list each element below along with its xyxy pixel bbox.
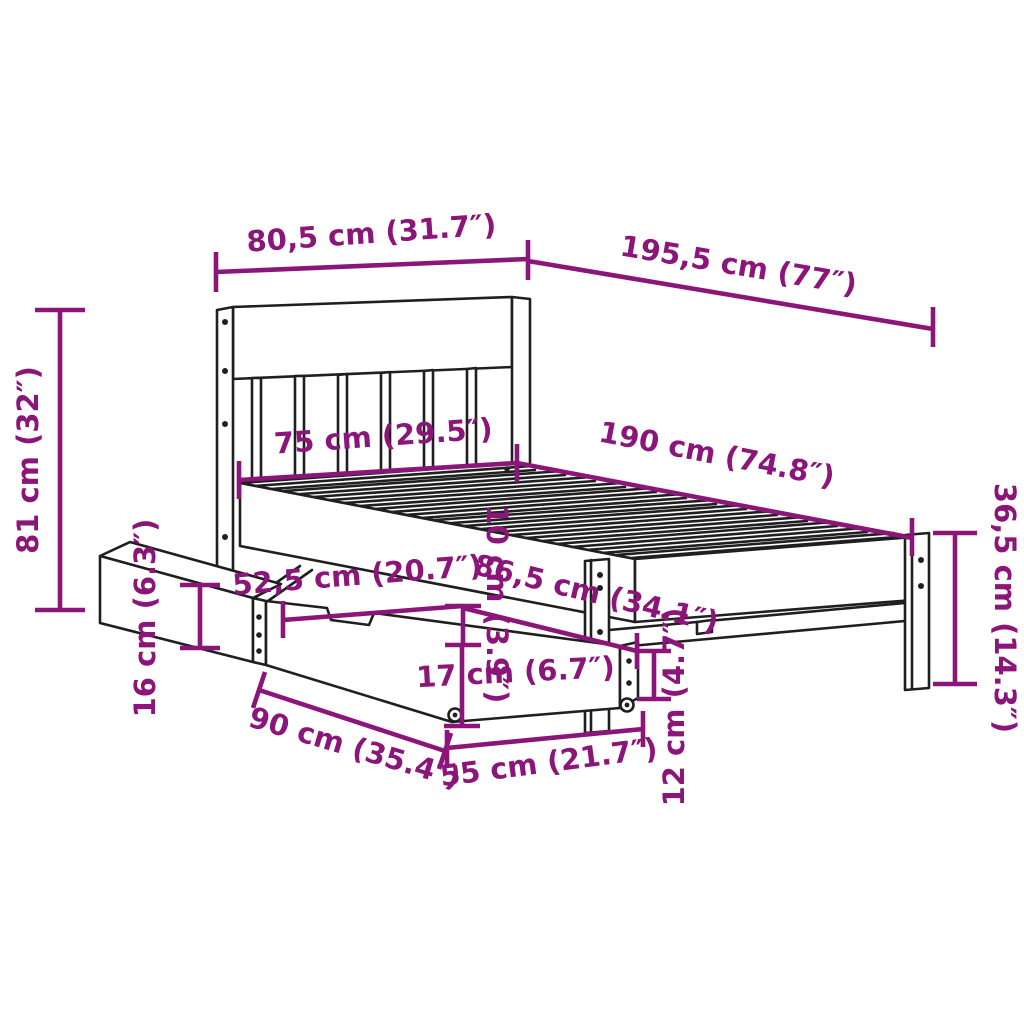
left-drawer-end <box>253 598 266 665</box>
screw-dot <box>918 583 924 589</box>
screw-dot <box>256 648 262 654</box>
screw-dot <box>918 557 924 563</box>
caster-hub <box>625 703 630 708</box>
screw-dot <box>256 614 262 620</box>
dim-label-headboard-width: 80,5 cm (31.7″) <box>245 207 497 258</box>
dim-label-inner-length: 190 cm (74.8″) <box>596 415 837 494</box>
screw-dot <box>222 319 228 325</box>
headboard-top-panel <box>233 297 512 379</box>
dim-label-drawer-side-height: 16 cm (6.3″) <box>128 519 162 718</box>
dim-line-footend-height <box>933 533 977 684</box>
screw-dot <box>626 658 632 664</box>
screw-dot <box>222 368 228 374</box>
dim-label-floor-clearance: 12 cm (4.7″) <box>657 608 691 807</box>
screw-dot <box>222 421 228 427</box>
foot-right-leg <box>905 533 929 690</box>
dim-label-headboard-height: 81 cm (32″) <box>11 366 45 554</box>
screw-dot <box>597 629 603 635</box>
screw-dot <box>222 534 228 540</box>
screw-dot <box>626 680 632 686</box>
screw-dot <box>504 466 510 472</box>
dim-label-footend-height: 36,5 cm (14.3″) <box>988 483 1022 733</box>
diagram-svg: 80,5 cm (31.7″) 195,5 cm (77″) 81 cm (32… <box>0 0 1024 1024</box>
headboard-slat <box>252 378 261 482</box>
caster-wheel <box>621 699 634 712</box>
bed-frame-dimension-diagram: 80,5 cm (31.7″) 195,5 cm (77″) 81 cm (32… <box>0 0 1024 1024</box>
dim-label-overall-length: 195,5 cm (77″) <box>618 229 859 302</box>
screw-dot <box>256 632 262 638</box>
caster-hub <box>453 713 458 718</box>
caster-wheel <box>449 709 462 722</box>
